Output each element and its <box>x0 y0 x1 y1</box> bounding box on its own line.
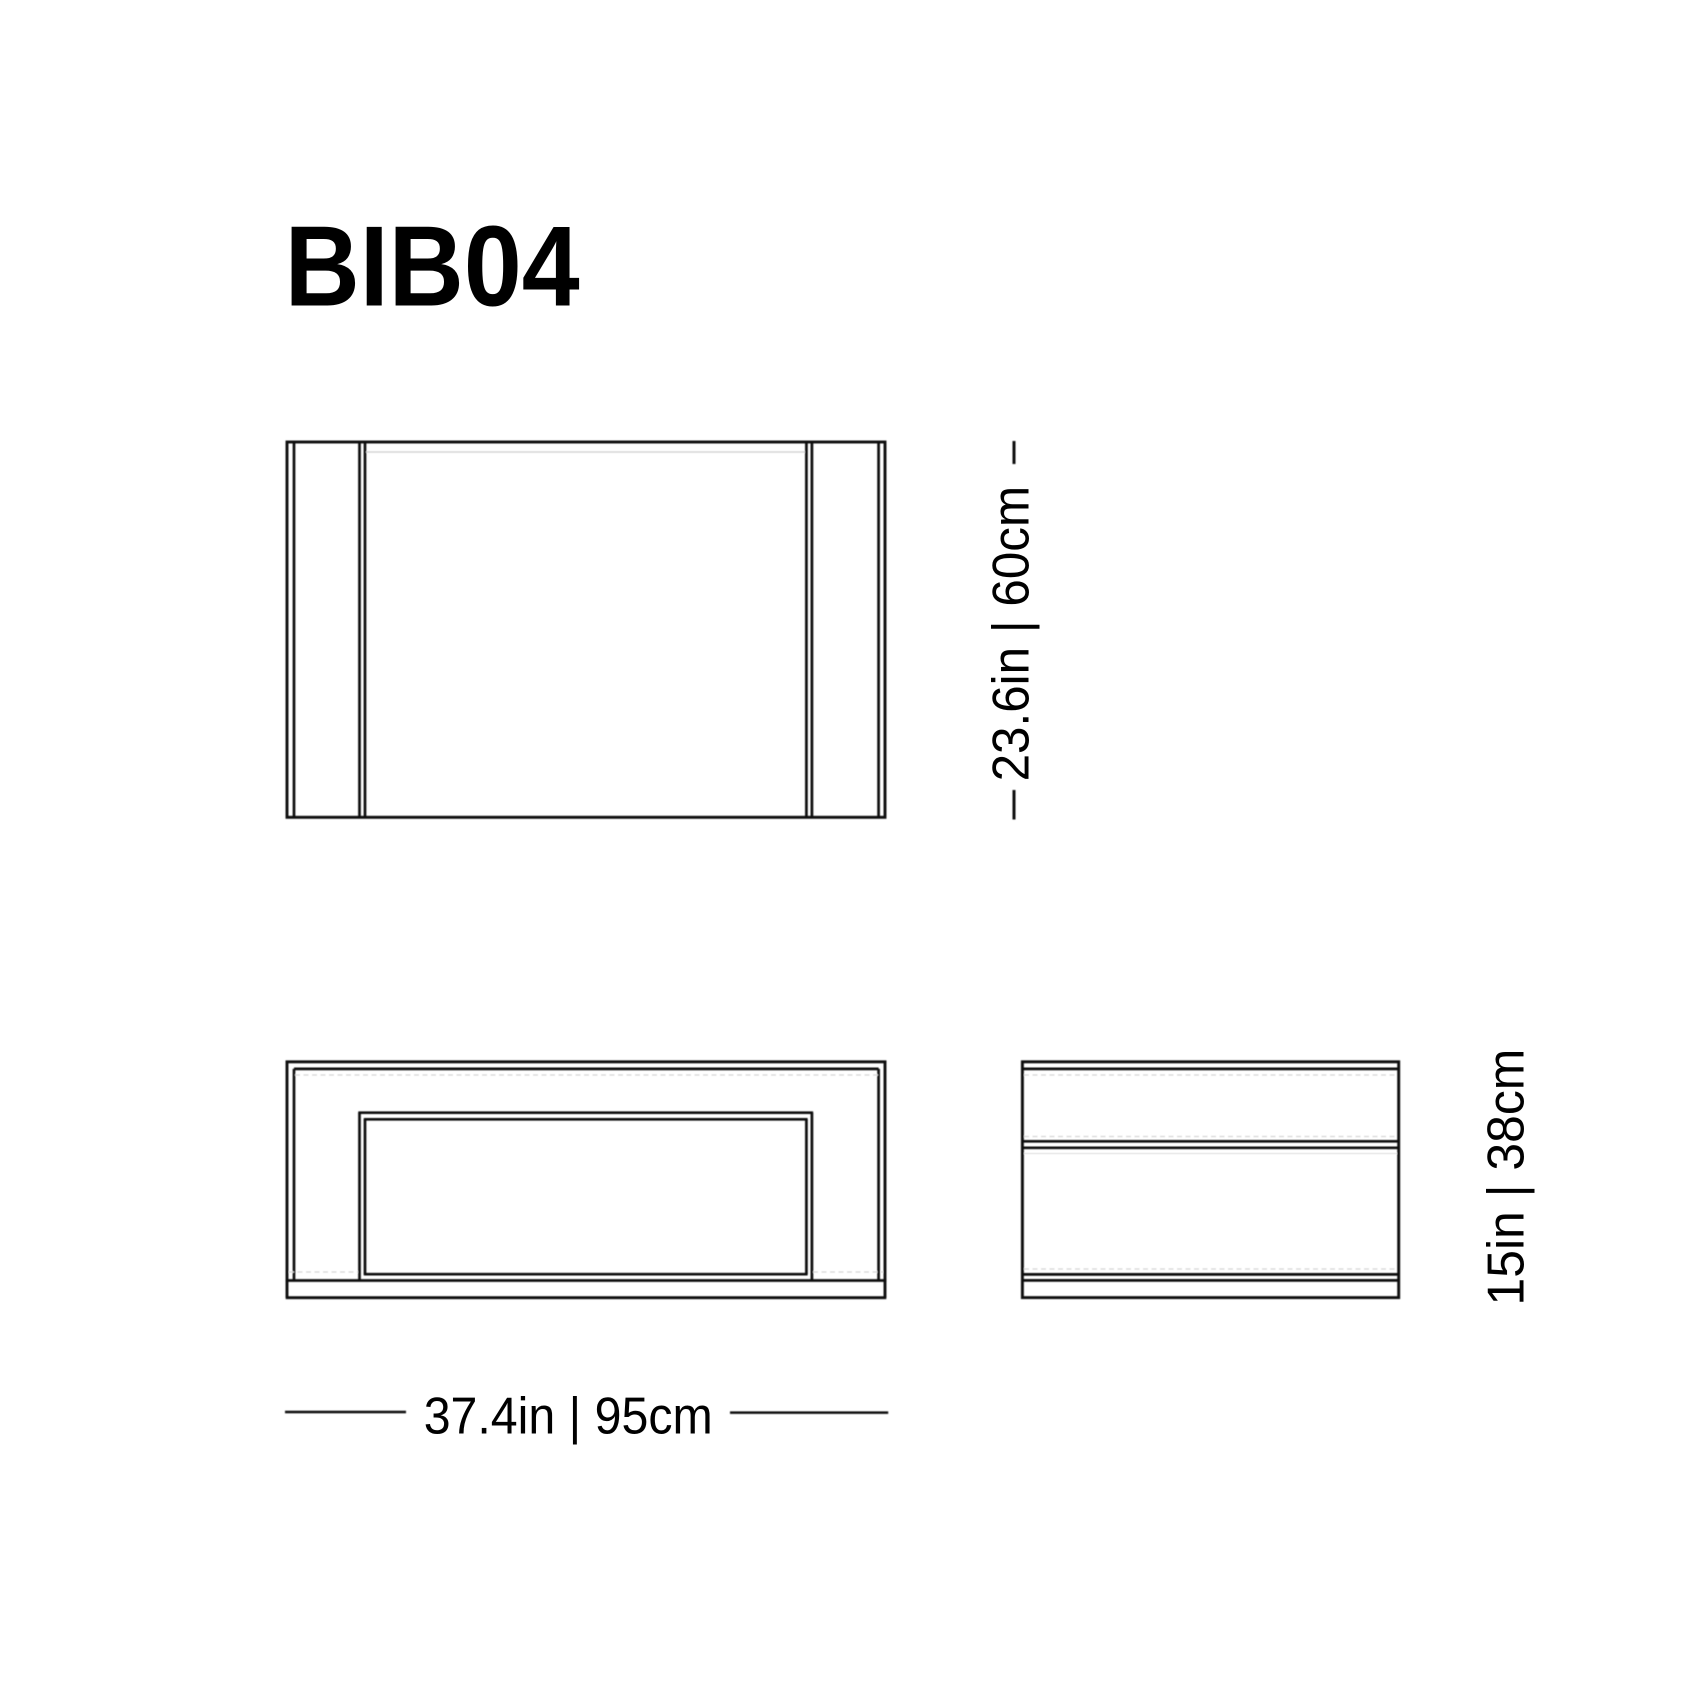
svg-text:BIB04: BIB04 <box>285 203 580 330</box>
svg-text:37.4in | 95cm: 37.4in | 95cm <box>424 1388 713 1446</box>
svg-text:23.6in | 60cm: 23.6in | 60cm <box>983 486 1041 782</box>
svg-text:15in | 38cm: 15in | 38cm <box>1478 1049 1536 1306</box>
